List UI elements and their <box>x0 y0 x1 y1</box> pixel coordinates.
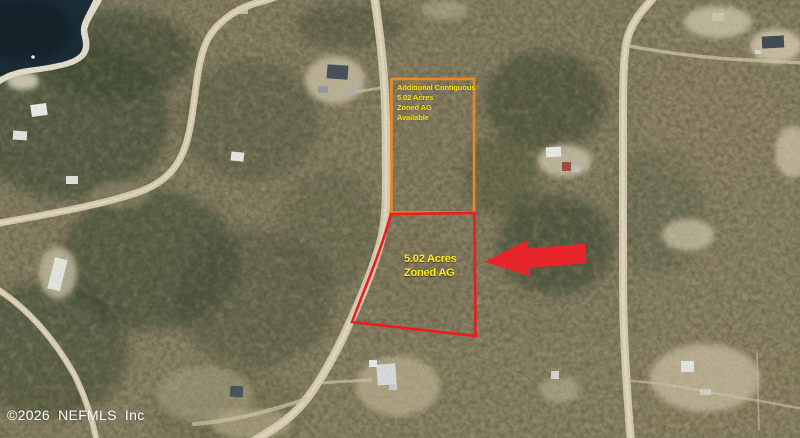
contiguous-parcel-label-line3: Zoned AG <box>397 103 475 113</box>
listing-aerial-map: Additional Contiguous 5.02 Acres Zoned A… <box>0 0 800 438</box>
contiguous-parcel-label-line2: 5.02 Acres <box>397 93 475 103</box>
photo-grain <box>0 0 800 438</box>
contiguous-parcel-label-line1: Additional Contiguous <box>397 83 475 93</box>
subject-parcel-label: 5.02 Acres Zoned AG <box>404 253 457 280</box>
contiguous-parcel-label-line4: Available <box>397 113 475 123</box>
subject-parcel-label-line2: Zoned AG <box>404 267 457 281</box>
subject-parcel-label-line1: 5.02 Acres <box>404 253 457 267</box>
contiguous-parcel-label: Additional Contiguous 5.02 Acres Zoned A… <box>397 83 475 123</box>
copyright-watermark: ©2026 NEFMLS Inc <box>7 407 145 423</box>
aerial-photo <box>0 0 800 438</box>
